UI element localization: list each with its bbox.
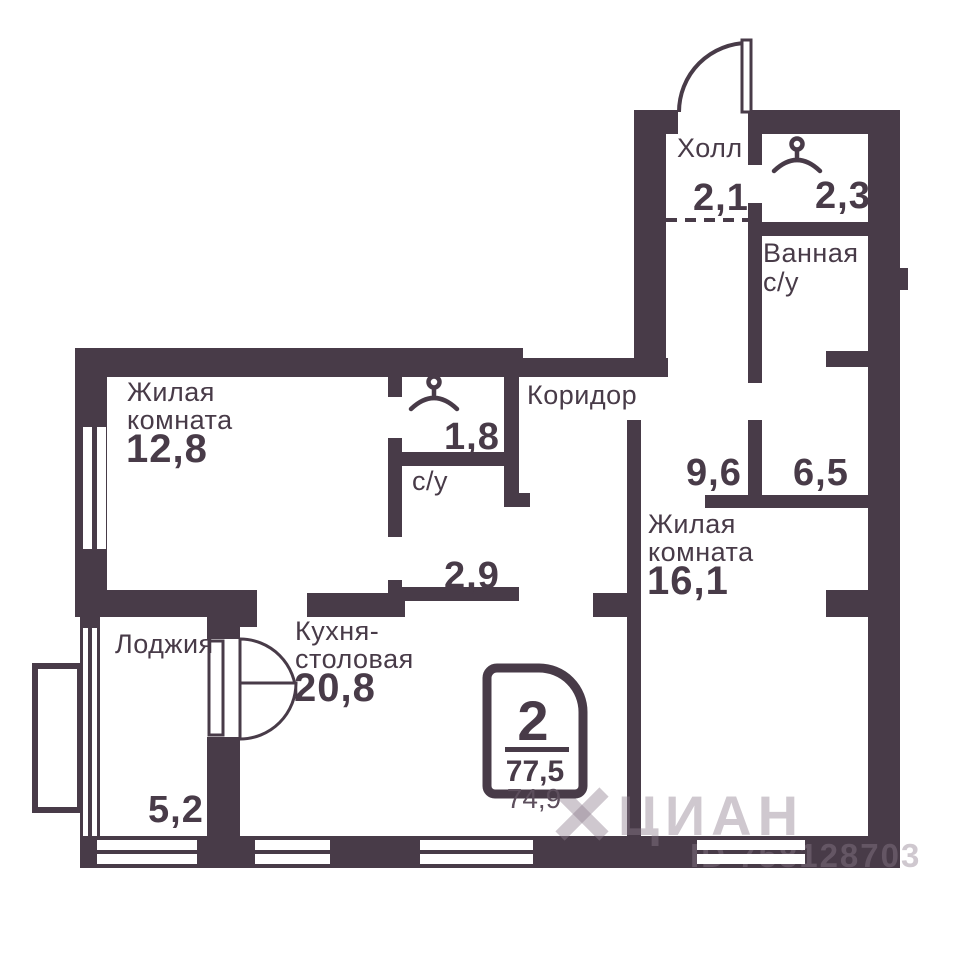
room-label-living1: Жилая [127, 377, 215, 407]
room-area-kitchen: 20,8 [294, 666, 376, 710]
window-kitchen [255, 840, 330, 850]
room-area-corridor: 9,6 [686, 452, 742, 494]
room-label-su: с/у [412, 466, 448, 496]
room-area-wardrobe-hall: 2,3 [815, 175, 871, 217]
entrance-door-leaf [742, 40, 751, 112]
room-label-bathroom: с/у [763, 267, 799, 297]
window-loggia-side [83, 628, 88, 836]
room-area-loggia: 5,2 [148, 789, 204, 831]
room-label-living2: Жилая [648, 509, 736, 539]
apartment-badge: 2 77,5 74,9 [487, 668, 583, 814]
room-area-wardrobe-suite: 1,8 [444, 416, 500, 458]
wall [748, 134, 762, 165]
room-label-kitchen: Кухня- [295, 616, 379, 646]
window-living1 [97, 427, 106, 549]
loggia-exterior-ledge [35, 666, 80, 810]
wall [634, 110, 666, 377]
wall [207, 737, 240, 836]
badge-living-area: 74,9 [507, 783, 562, 814]
wall [75, 348, 523, 377]
wall [748, 420, 762, 508]
badge-divider [505, 747, 569, 752]
wall [900, 268, 908, 290]
window-bedroom [697, 840, 805, 850]
window-loggia-bottom [97, 854, 197, 864]
wall [748, 222, 868, 236]
wall [634, 110, 678, 134]
window-kitchen [420, 854, 533, 864]
wall [826, 590, 868, 617]
room-area-living1: 12,8 [126, 427, 208, 471]
wall [388, 377, 402, 397]
wall [593, 593, 627, 617]
room-area-su: 2,9 [444, 555, 500, 597]
wall [705, 495, 868, 508]
wall [826, 351, 868, 367]
floor-plan: ЦИАН ID 758128703 Холл 2,1 2,3 Ван [0, 0, 960, 960]
room-area-living2: 16,1 [647, 559, 729, 603]
room-area-hall: 2,1 [693, 177, 749, 219]
wall [107, 590, 223, 617]
wall [627, 420, 641, 836]
room-label-bathroom: Ванная [763, 238, 858, 268]
badge-room-count: 2 [517, 689, 548, 752]
window-living1 [83, 427, 92, 549]
room-label-hall: Холл [677, 133, 743, 163]
room-area-storage: 6,5 [793, 452, 849, 494]
window-kitchen [255, 854, 330, 864]
window-loggia-bottom [97, 840, 197, 850]
wall [868, 110, 900, 868]
wall [504, 377, 519, 507]
window-bedroom [697, 854, 805, 864]
room-label-loggia: Лоджия [115, 629, 214, 659]
window-kitchen [420, 840, 533, 850]
room-label-corridor: Коридор [527, 380, 637, 410]
wall [307, 593, 405, 617]
window-loggia-side [92, 628, 97, 836]
wall [504, 493, 530, 507]
